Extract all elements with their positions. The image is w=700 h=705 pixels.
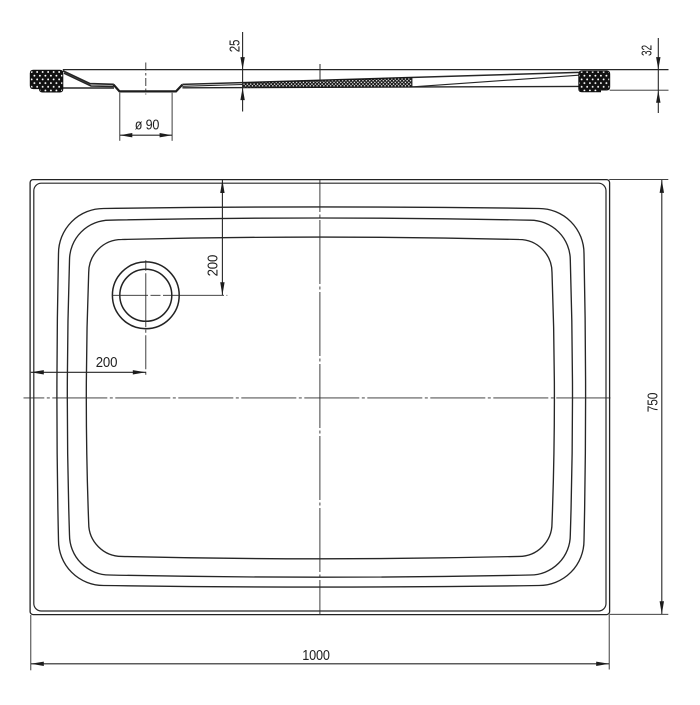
svg-text:25: 25 [227, 40, 244, 53]
svg-text:32: 32 [639, 45, 656, 56]
svg-text:200: 200 [96, 354, 118, 371]
svg-text:750: 750 [645, 393, 662, 413]
svg-text:1000: 1000 [302, 647, 330, 664]
svg-text:ø 90: ø 90 [135, 117, 160, 134]
svg-text:200: 200 [204, 255, 221, 277]
